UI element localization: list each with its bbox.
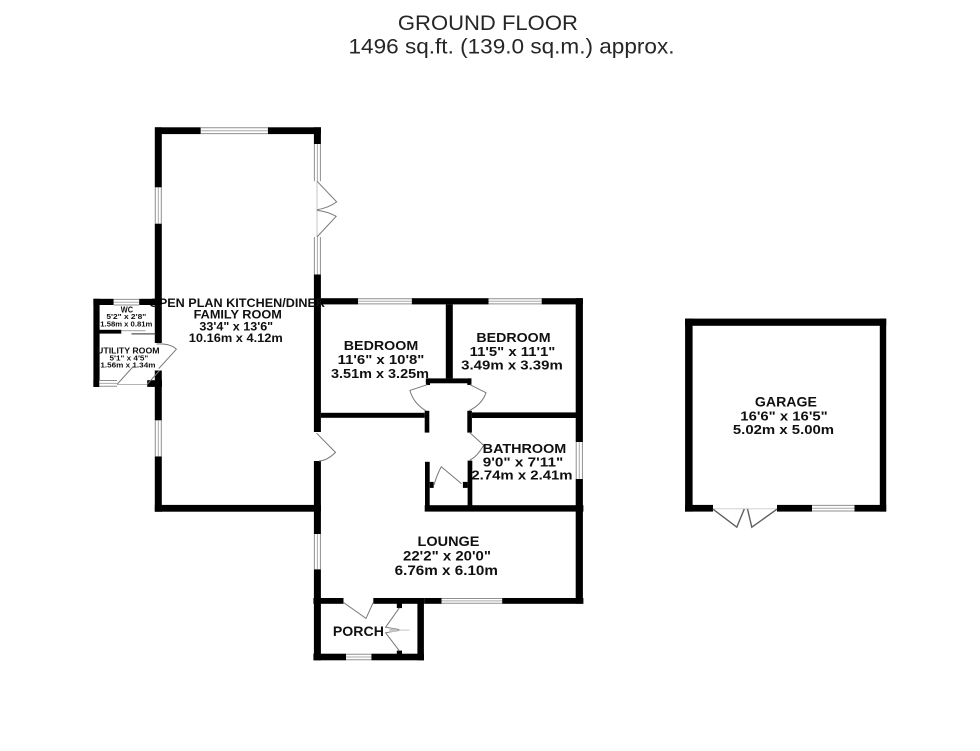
svg-text:6.76m x 6.10m: 6.76m x 6.10m bbox=[395, 563, 498, 578]
svg-text:PORCH: PORCH bbox=[333, 623, 384, 639]
svg-text:2.74m x 2.41m: 2.74m x 2.41m bbox=[471, 468, 572, 483]
svg-text:11'6" x 10'8": 11'6" x 10'8" bbox=[338, 352, 425, 367]
svg-text:BEDROOM: BEDROOM bbox=[344, 338, 419, 353]
svg-text:22'2" x 20'0": 22'2" x 20'0" bbox=[403, 549, 491, 564]
svg-text:3.49m x 3.39m: 3.49m x 3.39m bbox=[461, 357, 563, 372]
svg-text:5'2" x 2'8": 5'2" x 2'8" bbox=[106, 314, 146, 321]
svg-text:BEDROOM: BEDROOM bbox=[476, 330, 550, 345]
svg-text:1.56m x 1.34m: 1.56m x 1.34m bbox=[100, 363, 155, 370]
svg-text:10.16m x 4.12m: 10.16m x 4.12m bbox=[189, 331, 283, 345]
svg-text:5'1" x 4'5": 5'1" x 4'5" bbox=[110, 355, 149, 362]
svg-text:5.02m x 5.00m: 5.02m x 5.00m bbox=[733, 422, 834, 437]
svg-text:16'6" x 16'5": 16'6" x 16'5" bbox=[740, 408, 827, 423]
svg-text:1496 sq.ft. (139.0 sq.m.) appr: 1496 sq.ft. (139.0 sq.m.) approx. bbox=[349, 34, 675, 58]
svg-text:GARAGE: GARAGE bbox=[755, 394, 817, 409]
svg-text:LOUNGE: LOUNGE bbox=[418, 533, 480, 549]
svg-text:UTILITY ROOM: UTILITY ROOM bbox=[97, 345, 160, 355]
svg-text:GROUND FLOOR: GROUND FLOOR bbox=[398, 11, 578, 35]
svg-text:1.58m x 0.81m: 1.58m x 0.81m bbox=[100, 322, 152, 329]
svg-text:WC: WC bbox=[121, 305, 133, 315]
svg-text:3.51m x 3.25m: 3.51m x 3.25m bbox=[331, 366, 429, 381]
